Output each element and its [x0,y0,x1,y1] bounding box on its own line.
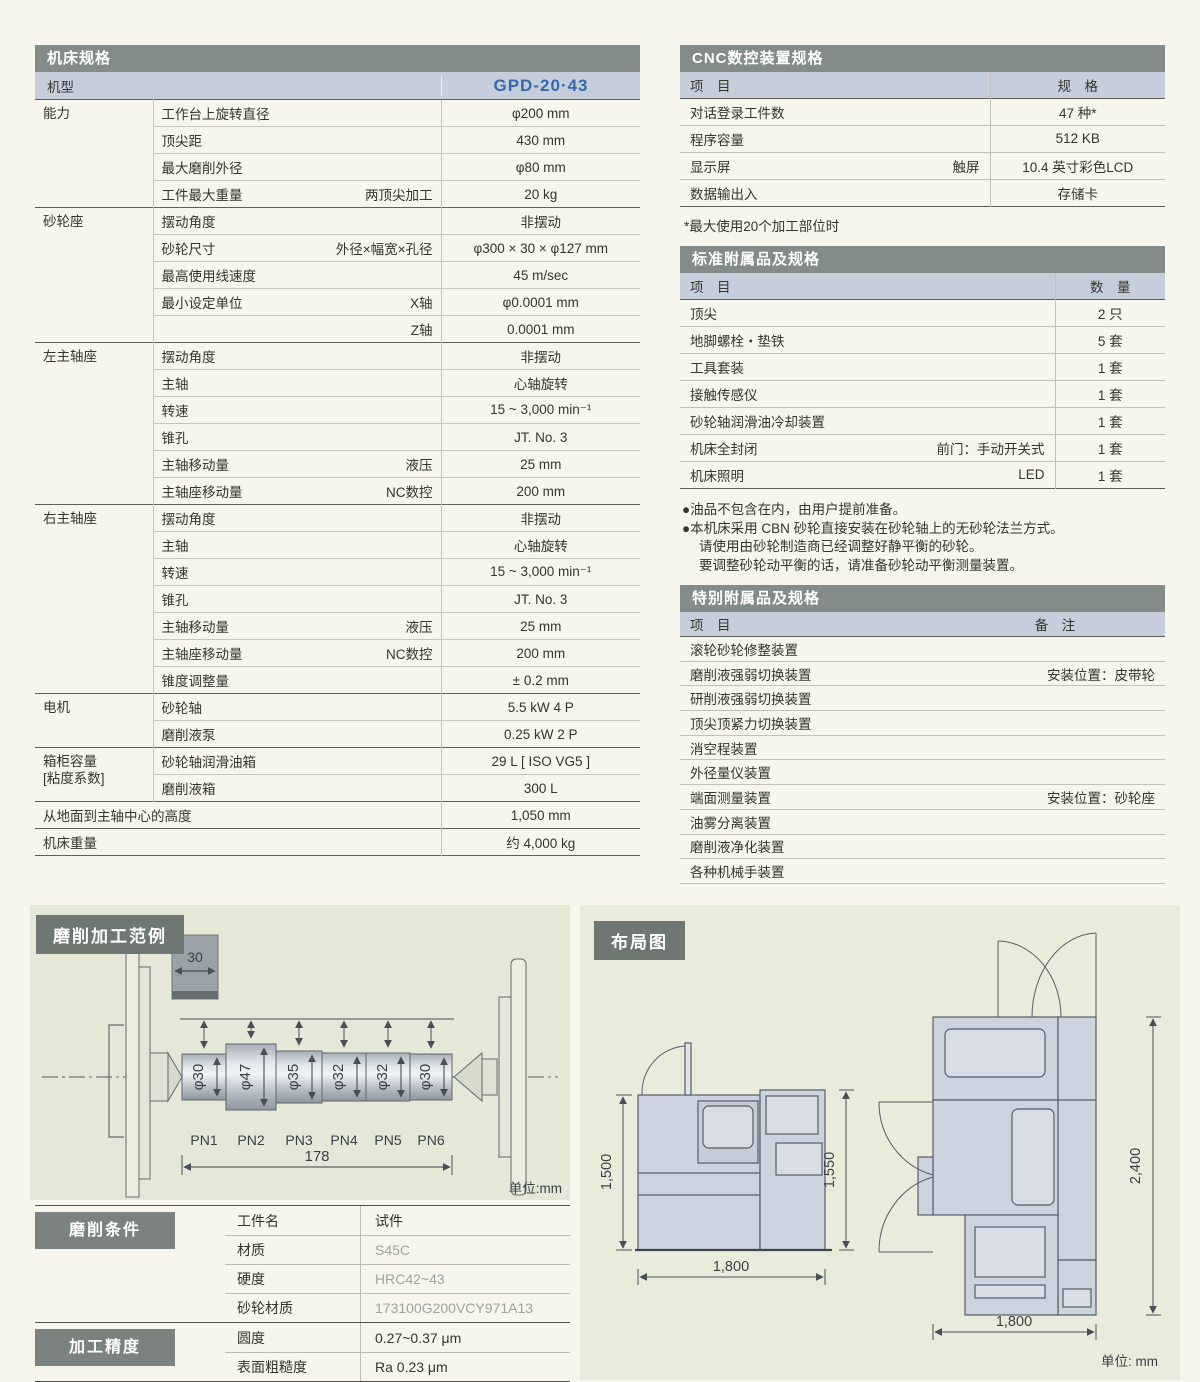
machine-spec-section: 机床规格 机型 GPD-20·43 能力 工作台上旋转直径 φ200 mm 顶尖… [35,45,640,856]
front-width-label: 1,800 [713,1259,749,1275]
tailstock-hub [482,1059,497,1095]
grinding-example-panel: 30 φ30 φ47 φ35 φ32 [30,905,570,1200]
section-label: PN4 [330,1132,357,1148]
plan-left-step [918,1157,933,1215]
catalog-spec-page: 机床规格 机型 GPD-20·43 能力 工作台上旋转直径 φ200 mm 顶尖… [0,0,1200,1382]
plan-door-arc [998,941,1061,1017]
spec-category: 砂轮座 [35,208,153,343]
cnc-spec-title: CNC数控装置规格 [680,45,1165,72]
table-row: 消空程装置 [680,735,1165,760]
section-label: PN5 [374,1132,401,1148]
plan-bottom-window [975,1227,1045,1277]
plan-top-window [945,1029,1045,1077]
standard-accessories-section: 标准附属品及规格 项 目数 量 顶尖2 只 地脚螺栓・垫铁5 套 工具套装1 套… [680,246,1165,489]
table-row: 顶尖顶紧力切换装置 [680,710,1165,735]
front-door-arc [642,1046,685,1095]
faceplate-bracket [109,1025,124,1137]
table-row: 研削液强弱切换装置 [680,685,1165,710]
table-row: 各种机械手装置 [680,858,1165,883]
front-window [703,1106,753,1148]
table-row: 机床重量约 4,000 kg [35,829,640,856]
front-height-left-label: 1,500 [599,1154,615,1190]
faceplate-disc [139,967,150,1179]
table-header-row: 项 目规 格 [680,72,1165,98]
spec-category: 左主轴座 [35,343,153,505]
dia-label: φ47 [237,1064,254,1090]
special-accessories-table: 滚轮砂轮修整装置 磨削液强弱切换装置安装位置：皮带轮 研削液强弱切换装置 顶尖顶… [680,636,1165,884]
faceplate-disc [126,949,139,1197]
table-header-row: 项 目备 注 [680,612,1165,636]
model-value: GPD-20·43 [441,76,640,96]
accuracy-title: 加工精度 [35,1329,175,1366]
table-row: 电机 砂轮轴 5.5 kW 4 P [35,694,640,721]
table-row: 机床照明LED1 套 [680,461,1165,488]
dia-label: φ30 [190,1064,207,1090]
table-row: 地脚螺栓・垫铁5 套 [680,326,1165,353]
table-row: 材质S45C [225,1235,570,1264]
table-row: 砂轮座 摆动角度 非摆动 [35,208,640,235]
note-line: ●油品不包含在内，由用户提前准备。 [682,501,1180,520]
front-cabinet-window [766,1096,818,1134]
table-row: 显示屏触屏10.4 英寸彩色LCD [680,152,1165,179]
table-header-row: 项 目数 量 [680,273,1165,299]
note-line: ●本机床采用 CBN 砂轮直接安装在砂轮轴上的无砂轮法兰方式。 [682,520,1180,539]
table-row: 程序容量512 KB [680,125,1165,152]
tailstock-disc [499,997,511,1157]
wheel-width-label: 30 [187,949,203,965]
plan-small-box [1063,1289,1091,1307]
dia-label: φ30 [417,1064,434,1090]
layout-panel: 1,500 1,550 1,800 2,400 1,800 单位: mm 布局图 [580,905,1180,1380]
front-height-right-label: 1,550 [822,1152,838,1188]
layout-title: 布局图 [594,921,685,960]
cnc-footnote: *最大使用20个加工部位时 [680,215,1165,235]
layout-diagram: 1,500 1,550 1,800 2,400 1,800 单位: mm [580,905,1180,1380]
machine-spec-table: 能力 工作台上旋转直径 φ200 mm 顶尖距430 mm 最大磨削外径φ80 … [35,99,640,856]
table-row: 数据输出入存储卡 [680,179,1165,206]
table-row: 左主轴座 摆动角度 非摆动 [35,343,640,370]
table-row: 滚轮砂轮修整装置 [680,636,1165,661]
table-row: 端面测量装置安装位置：砂轮座 [680,784,1165,809]
tailstock-disc [511,959,526,1195]
model-row: 机型 GPD-20·43 [35,72,640,99]
right-center-cone [454,1053,482,1101]
spec-category: 能力 [35,100,153,208]
note-line: 要调整砂轮动平衡的话，请准备砂轮动平衡测量装置。 [682,557,1180,576]
table-row: 工具套装1 套 [680,353,1165,380]
spec-category: 箱柜容量[粘度系数] [35,748,153,802]
dia-label: φ32 [374,1064,391,1090]
section-label: PN6 [417,1132,444,1148]
table-row: 从地面到主轴中心的高度1,050 mm [35,802,640,829]
unit-label: 单位:mm [509,1181,562,1196]
grinding-wheel-edge [172,991,218,999]
table-row: 机床全封闭前门：手动开关式1 套 [680,434,1165,461]
dia-label: φ32 [330,1064,347,1090]
table-row: 外径量仪装置 [680,759,1165,784]
plan-right-column [1058,1017,1096,1260]
model-label: 机型 [35,76,441,96]
spec-category: 电机 [35,694,153,748]
standard-accessories-title: 标准附属品及规格 [680,246,1165,273]
section-label: PN3 [285,1132,312,1148]
notes-block: ●油品不包含在内，由用户提前准备。 ●本机床采用 CBN 砂轮直接安装在砂轮轴上… [682,501,1180,575]
cnc-spec-table: 项 目规 格 对话登录工件数47 种* 程序容量512 KB 显示屏触屏10.4… [680,72,1165,207]
table-row: 顶尖2 只 [680,299,1165,326]
machine-spec-title: 机床规格 [35,45,640,72]
plan-door-arc [1032,933,1096,1017]
table-row: 磨削液强弱切换装置安装位置：皮带轮 [680,661,1165,686]
unit-label: 单位: mm [1101,1354,1158,1369]
front-cabinet-panel [776,1143,822,1175]
table-row: 表面粗糙度Ra 0.23 μm [225,1352,570,1381]
table-row: 箱柜容量[粘度系数] 砂轮轴润滑油箱 29 L [ ISO VG5 ] [35,748,640,775]
grinding-example-title: 磨削加工范例 [36,915,184,954]
cnc-spec-section: CNC数控装置规格 项 目规 格 对话登录工件数47 种* 程序容量512 KB… [680,45,1165,235]
plan-bottom-slot [975,1285,1045,1298]
table-row: 工件名试件 [225,1206,570,1235]
plan-mid-window [1012,1109,1054,1205]
plan-width-label: 1,800 [996,1314,1032,1330]
front-door [685,1043,691,1095]
table-row: 硬度HRC42~43 [225,1264,570,1293]
spindle-hub [150,1053,168,1101]
total-length-label: 178 [304,1148,329,1165]
table-row: 右主轴座 摆动角度 非摆动 [35,505,640,532]
spec-category: 右主轴座 [35,505,153,694]
table-row: 油雾分离装置 [680,809,1165,834]
table-row: 圆度0.27~0.37 μm [225,1323,570,1352]
standard-accessories-table: 项 目数 量 顶尖2 只 地脚螺栓・垫铁5 套 工具套装1 套 接触传感仪1 套… [680,273,1165,489]
section-label: PN2 [237,1132,264,1148]
table-row: 能力 工作台上旋转直径 φ200 mm [35,100,640,127]
grinding-conditions-group: 磨削条件 工件名试件 材质S45C 硬度HRC42~43 砂轮材质173100G… [35,1205,570,1322]
conditions-accuracy-section: 磨削条件 工件名试件 材质S45C 硬度HRC42~43 砂轮材质173100G… [35,1205,570,1382]
section-label: PN1 [190,1132,217,1148]
dia-label: φ35 [285,1064,302,1090]
plan-depth-label: 2,400 [1128,1148,1144,1184]
left-center-cone [168,1053,182,1101]
table-row: 砂轮材质173100G200VCY971A13 [225,1293,570,1322]
grinding-conditions-title: 磨削条件 [35,1212,175,1249]
table-row: 砂轮轴润滑油冷却装置1 套 [680,407,1165,434]
special-accessories-title: 特别附属品及规格 [680,585,1165,612]
table-row: 接触传感仪1 套 [680,380,1165,407]
table-row: 磨削液净化装置 [680,834,1165,859]
accuracy-group: 加工精度 圆度0.27~0.37 μm 表面粗糙度Ra 0.23 μm [35,1322,570,1381]
special-accessories-section: 特别附属品及规格 项 目备 注 滚轮砂轮修整装置 磨削液强弱切换装置安装位置：皮… [680,585,1165,884]
note-line: 请使用由砂轮制造商已经调整好静平衡的砂轮。 [682,538,1180,557]
table-row: 对话登录工件数47 种* [680,98,1165,125]
